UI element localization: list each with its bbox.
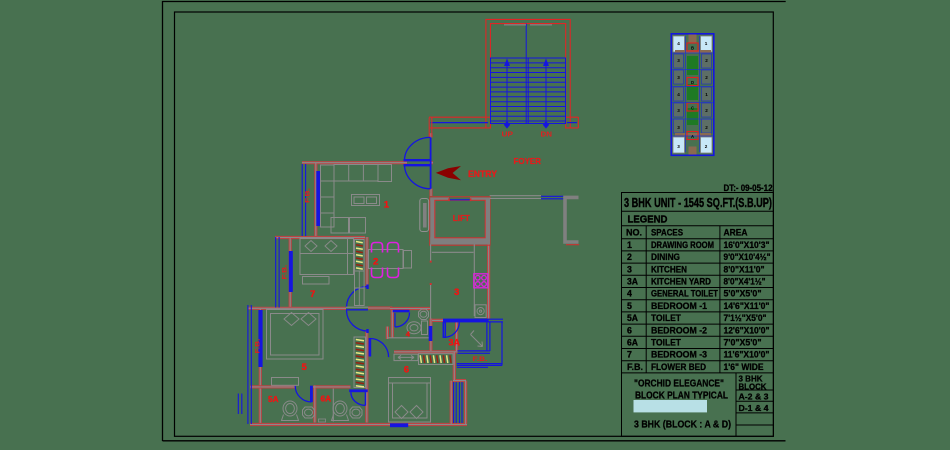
svg-text:UP: UP [502,132,514,139]
svg-text:3: 3 [454,287,459,298]
svg-text:16'0"X10'3": 16'0"X10'3" [724,240,770,250]
svg-text:B: B [691,46,694,51]
svg-text:7'0"X5'0": 7'0"X5'0" [724,338,762,348]
svg-text:DRAWING ROOM: DRAWING ROOM [651,240,714,250]
svg-text:5: 5 [302,362,308,373]
svg-text:3A: 3A [627,277,639,287]
svg-text:DN: DN [541,132,553,139]
svg-text:TOILET: TOILET [651,338,682,348]
svg-text:5A: 5A [627,313,639,323]
svg-text:5: 5 [627,301,632,311]
svg-text:DT:- 09-05-12: DT:- 09-05-12 [724,183,773,193]
svg-text:LIFT: LIFT [453,214,470,223]
svg-text:3: 3 [677,144,680,149]
svg-text:ENTRY: ENTRY [468,169,498,179]
svg-text:7: 7 [627,350,632,360]
svg-text:F.B.: F.B. [627,362,643,372]
svg-text:9'0"X10'4½": 9'0"X10'4½" [724,252,771,262]
svg-text:F.B.: F.B. [282,264,289,279]
svg-text:F.B.: F.B. [305,188,312,203]
svg-text:1: 1 [705,41,708,46]
svg-text:KITCHEN YARD: KITCHEN YARD [651,277,711,287]
svg-text:DINING: DINING [651,252,680,262]
svg-text:11'6"X10'0": 11'6"X10'0" [724,350,770,360]
svg-text:12'6"X10'0": 12'6"X10'0" [724,325,770,335]
svg-text:D: D [691,80,694,85]
svg-text:1'6" WIDE: 1'6" WIDE [724,362,764,372]
svg-text:3A: 3A [449,338,461,348]
svg-text:6: 6 [627,325,632,335]
svg-text:6A: 6A [627,338,639,348]
svg-text:2: 2 [705,75,708,80]
svg-text:8'0"X4'1½": 8'0"X4'1½" [724,277,766,287]
svg-text:14'6"X11'0": 14'6"X11'0" [724,301,770,311]
svg-text:3 BHK (BLOCK : A & D): 3 BHK (BLOCK : A & D) [634,419,731,431]
svg-text:3: 3 [677,108,680,113]
svg-text:AREA: AREA [724,228,749,238]
svg-text:A: A [691,134,694,139]
svg-text:BEDROOM -1: BEDROOM -1 [651,301,707,311]
svg-text:6: 6 [404,364,409,375]
svg-text:F.B.: F.B. [473,356,488,363]
svg-text:2: 2 [705,144,708,149]
svg-text:5'0"X5'0": 5'0"X5'0" [724,289,762,299]
svg-text:1: 1 [705,92,708,97]
svg-text:8'0"X11'0": 8'0"X11'0" [724,264,765,274]
svg-text:SPACES: SPACES [651,228,683,238]
svg-text:7: 7 [310,289,315,300]
svg-text:2: 2 [627,252,632,262]
svg-text:F.B.: F.B. [255,338,262,353]
svg-text:TOILET: TOILET [651,313,682,323]
svg-text:3: 3 [677,58,680,63]
svg-text:GENERAL TOILET: GENERAL TOILET [651,289,719,299]
svg-text:2: 2 [705,125,708,130]
svg-text:2: 2 [705,108,708,113]
svg-text:A-2 & 3: A-2 & 3 [739,391,769,401]
svg-text:3: 3 [627,264,632,274]
svg-text:BEDROOM -2: BEDROOM -2 [651,325,707,335]
svg-text:3 BHK UNIT - 1545 SQ.FT.(S.B.U: 3 BHK UNIT - 1545 SQ.FT.(S.B.UP) [624,196,772,210]
svg-text:BEDROOM -3: BEDROOM -3 [651,350,707,360]
svg-text:KITCHEN: KITCHEN [651,264,687,274]
svg-text:6A: 6A [321,394,332,403]
svg-text:5A: 5A [268,395,279,404]
svg-text:NO.: NO. [626,228,642,238]
svg-text:BLOCK PLAN TYPICAL: BLOCK PLAN TYPICAL [635,390,728,402]
svg-text:FOYER: FOYER [514,157,542,166]
svg-text:4: 4 [677,41,680,46]
svg-text:3: 3 [677,125,680,130]
svg-text:1: 1 [384,200,390,211]
svg-text:LEGEND: LEGEND [628,214,668,226]
svg-text:"ORCHID ELEGANCE": "ORCHID ELEGANCE" [634,378,724,390]
svg-text:2: 2 [705,58,708,63]
svg-text:4: 4 [677,92,680,97]
svg-text:3: 3 [677,75,680,80]
svg-text:D-1 & 4: D-1 & 4 [739,403,769,413]
svg-text:FLOWER BED: FLOWER BED [651,362,706,372]
svg-text:2: 2 [373,257,378,268]
svg-text:C: C [691,106,694,111]
svg-text:7'1½"X5'0": 7'1½"X5'0" [724,313,767,323]
svg-text:1: 1 [627,240,632,250]
svg-text:BLOCK: BLOCK [739,381,767,391]
svg-text:4: 4 [627,289,632,299]
